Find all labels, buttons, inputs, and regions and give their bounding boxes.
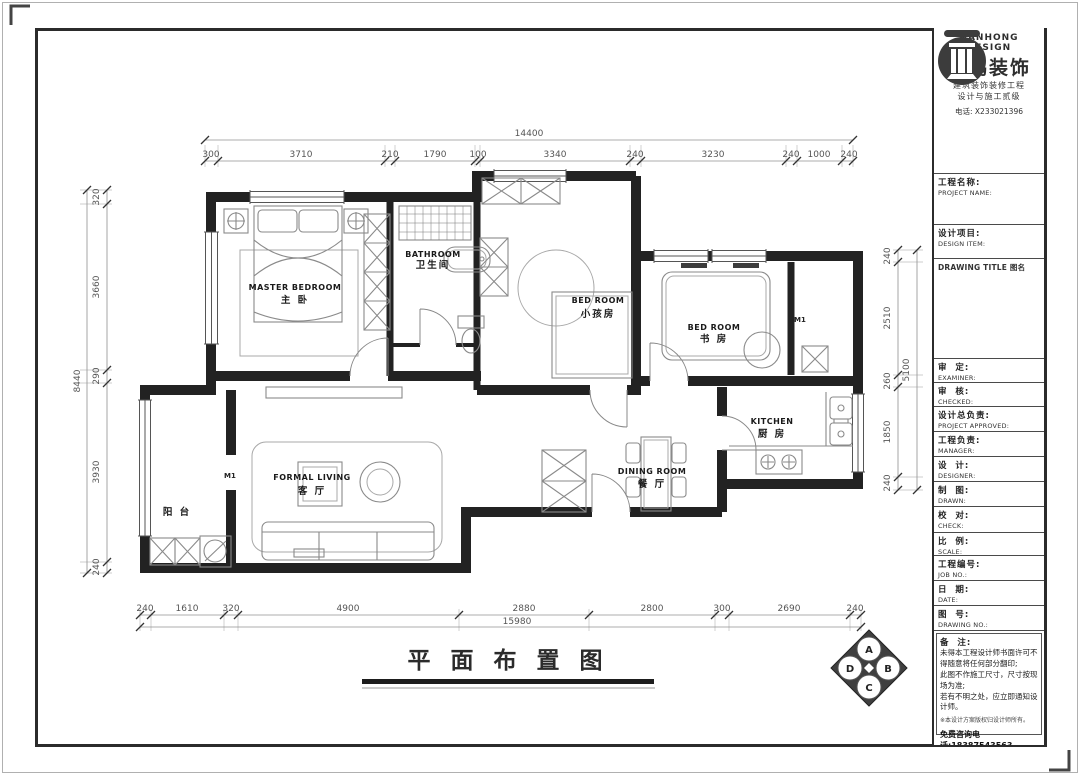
label-dining-en: DINING ROOM — [618, 467, 687, 476]
title-underline — [362, 679, 654, 684]
dim-top-1: 3710 — [290, 150, 313, 160]
field-approved-en: PROJECT APPROVED: — [938, 422, 1040, 430]
field-drawing-title: DRAWING TITLE 图名 — [934, 259, 1044, 359]
field-design-item-en: DESIGN ITEM: — [938, 240, 1040, 248]
nanhong-logo-icon — [934, 28, 990, 86]
label-bathroom-cn: 卫生间 — [416, 259, 451, 271]
field-project-name-en: PROJECT NAME: — [938, 189, 1040, 197]
field-manager-en: MANAGER: — [938, 447, 1040, 455]
label-dining-cn: 餐 厅 — [637, 478, 666, 490]
field-job-no-en: JOB NO.: — [938, 571, 1040, 579]
dim-left-overall: 8440 — [73, 369, 83, 392]
brand-tagline-2: 设计与施工贰级 — [938, 91, 1040, 102]
note-line-2: 此图不作施工尺寸，尺寸按现场为准; — [940, 670, 1038, 692]
label-living-en: FORMAL LIVING — [273, 473, 350, 482]
field-drawing-no-cn: 图 号: — [938, 608, 1040, 620]
dim-right-2: 260 — [883, 372, 893, 389]
field-designer-en: DESIGNER: — [938, 472, 1040, 480]
dim-right-0: 240 — [883, 247, 893, 264]
notes-section: 备 注: 未得本工程设计师书面许可不得随意将任何部分翻印; 此图不作施工尺寸，尺… — [934, 631, 1044, 745]
dim-top-6: 240 — [626, 150, 643, 160]
dim-left-4: 240 — [92, 558, 102, 575]
field-check: 校 对: CHECK: — [934, 507, 1044, 533]
field-project-name-cn: 工程名称: — [938, 176, 1040, 188]
field-scale-cn: 比 例: — [938, 535, 1040, 547]
plan-title-text: 平 面 布 置 图 — [407, 647, 608, 674]
label-kitchen-cn: 厨 房 — [758, 428, 786, 440]
dim-bottom-overall: 15980 — [503, 617, 532, 627]
compass-b: B — [884, 664, 892, 675]
dim-left-2: 290 — [92, 367, 102, 384]
field-date-en: DATE: — [938, 596, 1040, 604]
field-design-item-cn: 设计项目: — [938, 227, 1040, 239]
dim-top-9: 1000 — [808, 150, 831, 160]
brand-phone: 电话: X233021396 — [938, 106, 1040, 117]
field-date: 日 期: DATE: — [934, 581, 1044, 606]
label-study-en: BED ROOM — [688, 323, 741, 332]
field-job-no: 工程编号: JOB NO.: — [934, 556, 1044, 581]
label-balcony-cn: 阳 台 — [163, 506, 191, 518]
window-sill — [733, 263, 759, 268]
field-drawing-title-label: DRAWING TITLE 图名 — [938, 262, 1040, 273]
dim-bot-0: 240 — [136, 604, 153, 614]
note-line-4: ※本设计方案版权归设计师所有。 — [940, 715, 1038, 724]
dim-bot-5: 2800 — [641, 604, 664, 614]
field-checked-en: CHECKED: — [938, 398, 1040, 406]
field-date-cn: 日 期: — [938, 583, 1040, 595]
field-approved-cn: 设计总负责: — [938, 409, 1040, 421]
dim-top-0: 300 — [202, 150, 219, 160]
field-check-en: CHECK: — [938, 522, 1040, 530]
label-master-en: MASTER BEDROOM — [249, 283, 342, 292]
drawing-sheet: MASTER BEDROOM 主 卧 BATHROOM 卫生间 BED ROOM… — [0, 0, 1080, 775]
field-designer-cn: 设 计: — [938, 459, 1040, 471]
note-line-3: 若有不明之处，应立即通知设计师。 — [940, 692, 1038, 714]
dim-left-0: 320 — [92, 188, 102, 205]
window-sill — [681, 263, 707, 268]
door-tag-balcony: M1 — [224, 472, 236, 480]
field-check-cn: 校 对: — [938, 509, 1040, 521]
field-checked-cn: 审 核: — [938, 385, 1040, 397]
field-examiner: 审 定: EXAMINER: — [934, 359, 1044, 383]
label-living-cn: 客 厅 — [297, 485, 326, 497]
notes-box: 备 注: 未得本工程设计师书面许可不得随意将任何部分翻印; 此图不作施工尺寸，尺… — [936, 633, 1042, 735]
dim-left-3: 3930 — [92, 460, 102, 483]
hotline: 免费咨询电话:18387543563 — [940, 729, 1038, 745]
label-study-cn: 书 房 — [700, 333, 728, 345]
label-kitchen-en: KITCHEN — [751, 417, 794, 426]
title-block: NANHONG DESIGN 南鸿装饰 建筑装饰装修工程 设计与施工贰级 电话:… — [932, 28, 1044, 745]
dim-top-8: 240 — [782, 150, 799, 160]
logo-section: NANHONG DESIGN 南鸿装饰 建筑装饰装修工程 设计与施工贰级 电话:… — [934, 28, 1044, 174]
door-tag-study: M1 — [794, 316, 806, 324]
field-examiner-en: EXAMINER: — [938, 374, 1040, 382]
label-bathroom-en: BATHROOM — [405, 250, 461, 259]
field-manager-cn: 工程负责: — [938, 434, 1040, 446]
dim-top-2: 210 — [381, 150, 398, 160]
dim-bot-8: 240 — [846, 604, 863, 614]
field-manager: 工程负责: MANAGER: — [934, 432, 1044, 457]
field-approved: 设计总负责: PROJECT APPROVED: — [934, 407, 1044, 432]
dim-top-4: 100 — [469, 150, 486, 160]
compass-d: D — [846, 664, 854, 675]
dim-bot-4: 2880 — [513, 604, 536, 614]
label-master-cn: 主 卧 — [281, 294, 309, 306]
dim-top-10: 240 — [840, 150, 857, 160]
field-drawn-en: DRAWN: — [938, 497, 1040, 505]
field-job-no-cn: 工程编号: — [938, 558, 1040, 570]
dim-bot-7: 2690 — [778, 604, 801, 614]
dim-left-1: 3660 — [92, 275, 102, 298]
dim-top-3: 1790 — [424, 150, 447, 160]
dim-right-3: 1850 — [883, 420, 893, 443]
field-designer: 设 计: DESIGNER: — [934, 457, 1044, 482]
dim-top-5: 3340 — [544, 150, 567, 160]
note-line-1: 未得本工程设计师书面许可不得随意将任何部分翻印; — [940, 648, 1038, 670]
field-design-item: 设计项目: DESIGN ITEM: — [934, 225, 1044, 259]
dim-right-overall: 5100 — [902, 358, 912, 381]
label-kids-cn: 小孩房 — [580, 308, 616, 320]
dim-right-1: 2510 — [883, 306, 893, 329]
compass-a: A — [865, 645, 873, 656]
field-scale: 比 例: SCALE: — [934, 533, 1044, 556]
dim-top-overall: 14400 — [515, 129, 544, 139]
dim-right-4: 240 — [883, 474, 893, 491]
label-kids-en: BED ROOM — [572, 296, 625, 305]
dim-bot-2: 320 — [222, 604, 239, 614]
field-scale-en: SCALE: — [938, 548, 1040, 556]
field-examiner-cn: 审 定: — [938, 361, 1040, 373]
dim-bot-3: 4900 — [337, 604, 360, 614]
field-drawing-no: 图 号: DRAWING NO.: — [934, 606, 1044, 631]
floor-plan-canvas: MASTER BEDROOM 主 卧 BATHROOM 卫生间 BED ROOM… — [0, 0, 1080, 775]
field-drawing-no-en: DRAWING NO.: — [938, 621, 1040, 629]
dim-bot-1: 1610 — [176, 604, 199, 614]
field-drawn: 制 图: DRAWN: — [934, 482, 1044, 507]
field-drawn-cn: 制 图: — [938, 484, 1040, 496]
dim-top-7: 3230 — [702, 150, 725, 160]
field-checked: 审 核: CHECKED: — [934, 383, 1044, 407]
field-project-name: 工程名称: PROJECT NAME: — [934, 174, 1044, 225]
dim-bot-6: 300 — [713, 604, 730, 614]
notes-label: 备 注: — [940, 636, 1038, 648]
compass-c: C — [865, 683, 872, 694]
